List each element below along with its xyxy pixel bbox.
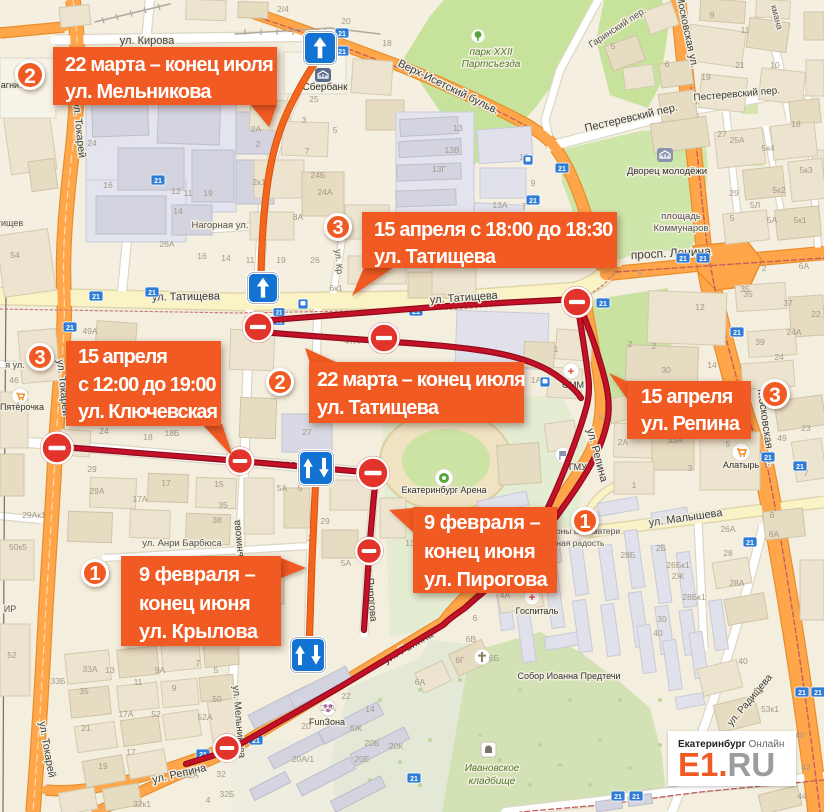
svg-text:6Ж: 6Ж [350,723,363,733]
svg-text:21: 21 [796,464,804,471]
svg-text:52: 52 [7,650,17,660]
svg-text:+: + [568,366,574,378]
svg-text:9: 9 [531,178,536,188]
svg-text:20Б: 20Б [364,738,379,748]
svg-text:17: 17 [161,478,171,488]
svg-text:46: 46 [9,375,19,385]
svg-text:35: 35 [740,284,750,294]
svg-text:13: 13 [453,123,463,133]
svg-text:16: 16 [103,180,113,190]
svg-text:5: 5 [730,213,735,223]
svg-text:6: 6 [665,59,670,69]
svg-text:21: 21 [338,31,346,38]
svg-text:5А: 5А [277,483,288,493]
svg-text:52: 52 [151,709,161,719]
svg-text:5Л: 5Л [750,200,760,210]
svg-text:5А: 5А [767,215,778,225]
svg-text:54: 54 [10,250,20,260]
svg-text:1: 1 [632,480,637,490]
svg-text:6Г: 6Г [455,655,465,665]
svg-text:7: 7 [196,658,201,668]
svg-text:24: 24 [87,138,97,148]
svg-text:2: 2 [628,339,633,349]
svg-text:4: 4 [206,795,211,805]
svg-text:17А: 17А [118,709,133,719]
svg-text:32к1: 32к1 [133,799,151,809]
svg-text:6В: 6В [466,634,477,644]
svg-text:9: 9 [172,683,177,693]
svg-text:6Б: 6Б [489,653,500,663]
svg-text:42: 42 [801,762,811,772]
svg-text:37: 37 [783,298,793,308]
svg-text:5: 5 [214,665,219,675]
svg-text:21: 21 [81,723,91,733]
svg-text:Екатеринбург Арена: Екатеринбург Арена [401,485,486,495]
svg-text:38: 38 [212,515,222,525]
svg-text:49А: 49А [82,326,97,336]
svg-text:50: 50 [212,694,222,704]
svg-text:14: 14 [173,206,183,216]
svg-text:20: 20 [341,16,351,26]
svg-text:30: 30 [661,365,671,375]
svg-text:5: 5 [726,439,731,449]
svg-text:2Ж: 2Ж [672,571,685,581]
svg-text:5к3: 5к3 [799,165,812,175]
svg-text:26: 26 [310,255,320,265]
svg-text:18: 18 [143,432,153,442]
svg-text:11: 11 [134,677,143,687]
svg-text:5: 5 [638,268,643,278]
svg-text:парк XXII: парк XXII [469,47,512,58]
svg-text:40: 40 [653,628,663,638]
svg-text:21: 21 [614,794,622,801]
svg-text:29: 29 [320,516,330,526]
svg-text:ул. Татищева: ул. Татищева [152,290,221,303]
svg-text:24А: 24А [317,187,332,197]
svg-text:3: 3 [688,463,693,473]
svg-text:33Б: 33Б [50,676,65,686]
svg-text:18: 18 [791,119,801,129]
svg-text:Нагорная ул.: Нагорная ул. [191,220,248,231]
svg-text:нная радость: нная радость [552,538,605,548]
svg-text:21: 21 [814,690,822,697]
svg-text:20К: 20К [389,741,403,751]
svg-text:5к2: 5к2 [772,185,785,195]
svg-text:28Б: 28Б [620,550,635,560]
svg-text:32: 32 [216,769,226,779]
svg-text:20А: 20А [320,703,335,713]
svg-text:площадь: площадь [661,211,701,222]
svg-text:2Б: 2Б [656,543,667,553]
svg-text:19: 19 [98,761,108,771]
svg-text:29Ак1: 29Ак1 [22,510,46,520]
svg-text:28Бк1: 28Бк1 [682,592,706,602]
svg-text:30: 30 [657,614,667,624]
svg-text:кладбище: кладбище [469,775,516,787]
svg-text:14: 14 [365,704,375,714]
svg-text:22: 22 [811,309,821,319]
svg-text:8А: 8А [293,212,304,222]
svg-text:20А/1: 20А/1 [292,754,314,764]
svg-text:29А: 29А [89,486,104,496]
svg-text:32Б: 32Б [219,789,234,799]
svg-text:5: 5 [611,41,616,51]
svg-text:17: 17 [126,747,136,757]
svg-text:21: 21 [679,256,687,263]
svg-text:12: 12 [695,302,705,312]
svg-text:2: 2 [652,341,657,351]
svg-text:13: 13 [105,665,115,675]
svg-text:2А: 2А [251,124,262,134]
svg-text:1: 1 [554,344,559,354]
svg-text:19: 19 [701,72,711,82]
svg-text:21: 21 [733,330,741,337]
svg-text:ул. Анри Барбюса: ул. Анри Барбюса [142,538,222,549]
svg-text:13А: 13А [492,200,507,210]
svg-text:Сбербанк: Сбербанк [303,81,349,93]
svg-text:14: 14 [707,360,717,370]
svg-text:7: 7 [305,146,310,156]
svg-text:18Б: 18Б [164,428,179,438]
svg-text:39: 39 [755,337,765,347]
svg-text:Алатырь: Алатырь [723,460,760,470]
svg-text:21: 21 [410,776,418,783]
svg-text:21: 21 [632,794,640,801]
svg-text:3: 3 [302,115,307,125]
svg-text:20Е: 20Е [354,754,369,764]
svg-text:21: 21 [338,49,346,56]
svg-text:52А: 52А [197,712,212,722]
svg-text:12: 12 [171,186,181,196]
svg-text:21: 21 [529,198,537,205]
svg-text:19: 19 [203,188,213,198]
svg-text:26А: 26А [720,524,735,534]
svg-text:24А: 24А [786,327,801,337]
svg-text:27: 27 [717,129,727,139]
svg-text:21: 21 [699,256,707,263]
svg-text:6А: 6А [769,529,780,539]
svg-text:29: 29 [729,188,739,198]
svg-text:26Бк1: 26Бк1 [666,560,690,570]
svg-text:11: 11 [246,255,255,265]
svg-text:Госпиталь: Госпиталь [516,606,559,616]
svg-text:Коммунаров: Коммунаров [654,223,709,234]
svg-text:35: 35 [79,686,89,696]
svg-text:ИР: ИР [4,604,16,614]
svg-text:Собор Иоанна Предтечи: Собор Иоанна Предтечи [517,671,620,681]
svg-text:11: 11 [741,25,750,35]
svg-text:тищев: тищев [0,218,23,228]
svg-text:24: 24 [774,352,784,362]
svg-text:21: 21 [599,301,607,308]
svg-text:15: 15 [214,479,224,489]
svg-text:13В: 13В [444,145,459,155]
svg-text:2/4: 2/4 [277,4,289,14]
svg-text:5к1: 5к1 [793,215,806,225]
svg-text:21: 21 [735,60,745,70]
svg-text:6: 6 [473,613,478,623]
svg-text:19: 19 [276,255,286,265]
svg-text:32А: 32А [183,770,198,780]
svg-text:21: 21 [148,290,156,297]
svg-text:6к1: 6к1 [329,283,342,293]
svg-text:22: 22 [341,691,351,701]
svg-text:24: 24 [99,426,109,436]
svg-text:ул. Кирова: ул. Кирова [120,35,175,47]
svg-text:28А: 28А [729,578,744,588]
svg-text:27: 27 [302,427,312,437]
svg-text:24Б: 24Б [310,170,325,180]
svg-text:20: 20 [301,721,311,731]
svg-text:21: 21 [154,178,162,185]
svg-text:50к5: 50к5 [9,542,27,552]
svg-text:21: 21 [276,311,283,317]
svg-text:Ивановское: Ивановское [465,763,520,774]
svg-text:29: 29 [87,464,97,474]
svg-text:2: 2 [762,263,767,273]
svg-text:6: 6 [770,510,775,520]
svg-text:17А: 17А [132,494,147,504]
svg-text:35: 35 [218,500,228,510]
svg-text:14: 14 [221,253,231,263]
svg-text:9: 9 [710,10,715,20]
svg-text:13Г: 13Г [432,164,446,174]
svg-text:FunЗона: FunЗона [309,717,345,727]
svg-text:21: 21 [764,455,772,462]
svg-text:16: 16 [197,251,207,261]
svg-text:Партсъезда: Партсъезда [462,59,521,70]
svg-text:53: 53 [753,686,763,696]
svg-text:6А: 6А [415,677,426,687]
svg-text:21: 21 [92,294,100,301]
svg-text:6А: 6А [799,261,810,271]
svg-text:2: 2 [256,139,261,149]
svg-text:18: 18 [382,38,392,48]
svg-text:11: 11 [184,188,193,198]
svg-text:40: 40 [795,730,805,740]
svg-text:5А: 5А [341,558,352,568]
svg-text:40: 40 [738,656,748,666]
svg-text:9А: 9А [155,665,166,675]
svg-text:10: 10 [770,60,780,70]
svg-text:33А: 33А [82,664,97,674]
svg-text:44: 44 [797,791,807,801]
svg-text:25: 25 [309,94,319,104]
svg-text:23: 23 [801,423,811,433]
svg-text:5к4: 5к4 [761,143,774,153]
svg-text:Пятёрочка: Пятёрочка [0,402,44,412]
svg-text:28: 28 [723,548,733,558]
svg-text:21: 21 [66,325,74,332]
svg-text:я ул.: я ул. [5,360,24,370]
svg-text:21: 21 [746,540,754,547]
svg-text:21: 21 [558,166,566,173]
svg-text:5: 5 [333,125,338,135]
svg-text:21: 21 [798,690,806,697]
svg-text:25А: 25А [729,135,744,145]
svg-text:Дворец молодёжи: Дворец молодёжи [627,166,707,177]
svg-text:53к1: 53к1 [761,704,779,714]
svg-text:26А: 26А [159,239,174,249]
svg-text:49: 49 [777,433,787,443]
